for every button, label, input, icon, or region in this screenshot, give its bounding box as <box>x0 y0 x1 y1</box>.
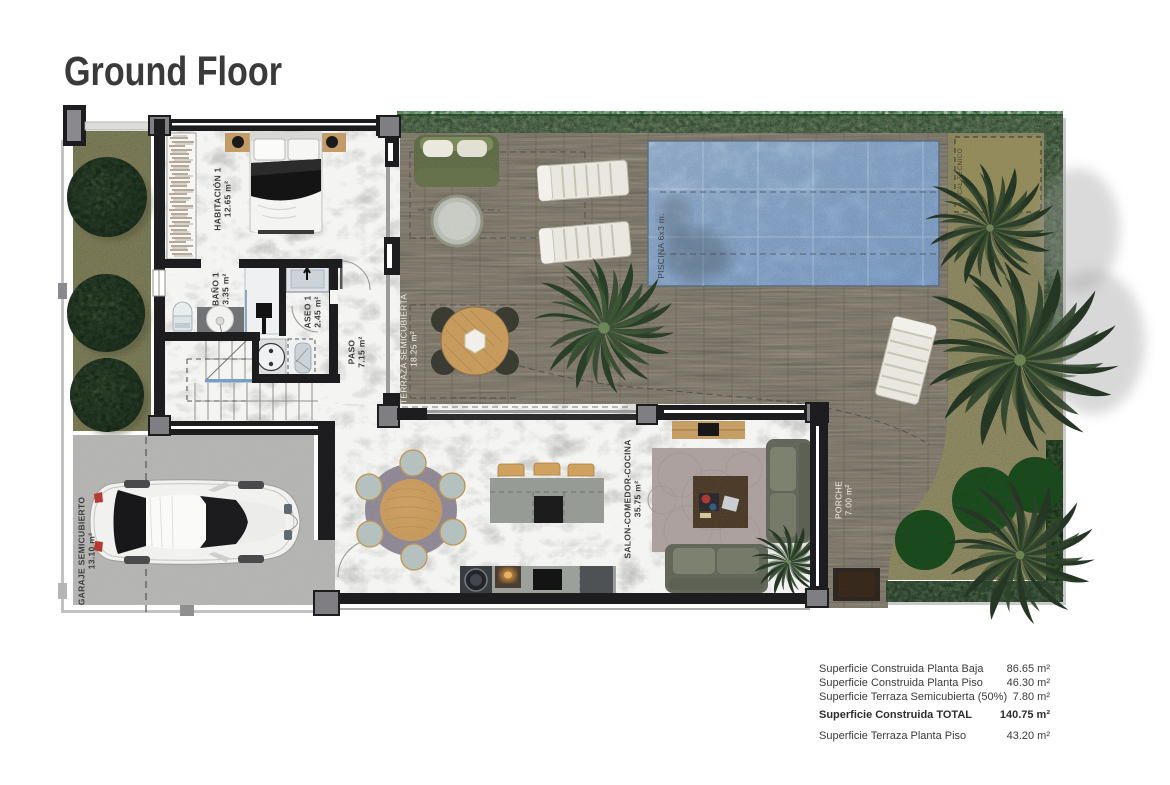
svg-text:PORCHE7.00 m²: PORCHE7.00 m² <box>834 481 854 519</box>
svg-text:Superficie Terraza Planta Piso: Superficie Terraza Planta Piso <box>819 730 966 742</box>
svg-text:Superficie Terraza Semicubiert: Superficie Terraza Semicubierta (50%) <box>819 691 1007 703</box>
svg-text:Superficie Construida TOTAL: Superficie Construida TOTAL <box>819 709 972 721</box>
svg-text:86.65 m²: 86.65 m² <box>1007 663 1051 675</box>
svg-text:ASEO 12.45 m²: ASEO 12.45 m² <box>303 296 323 329</box>
svg-text:46.30 m²: 46.30 m² <box>1007 677 1051 689</box>
svg-text:PASO7.15 m²: PASO7.15 m² <box>347 336 367 367</box>
svg-text:PISCINA 6x3 m.: PISCINA 6x3 m. <box>656 213 666 279</box>
svg-text:140.75 m²: 140.75 m² <box>1000 709 1050 721</box>
svg-text:LOCAL TECNICO: LOCAL TECNICO <box>957 148 964 204</box>
svg-text:Superficie Construida Planta P: Superficie Construida Planta Piso <box>819 677 983 689</box>
svg-text:Superficie Construida Planta B: Superficie Construida Planta Baja <box>819 663 984 675</box>
svg-text:7.80 m²: 7.80 m² <box>1013 691 1051 703</box>
svg-text:BAÑO 13.35 m²: BAÑO 13.35 m² <box>211 272 231 306</box>
svg-text:Ground Floor: Ground Floor <box>64 48 282 94</box>
svg-text:43.20 m²: 43.20 m² <box>1007 730 1051 742</box>
